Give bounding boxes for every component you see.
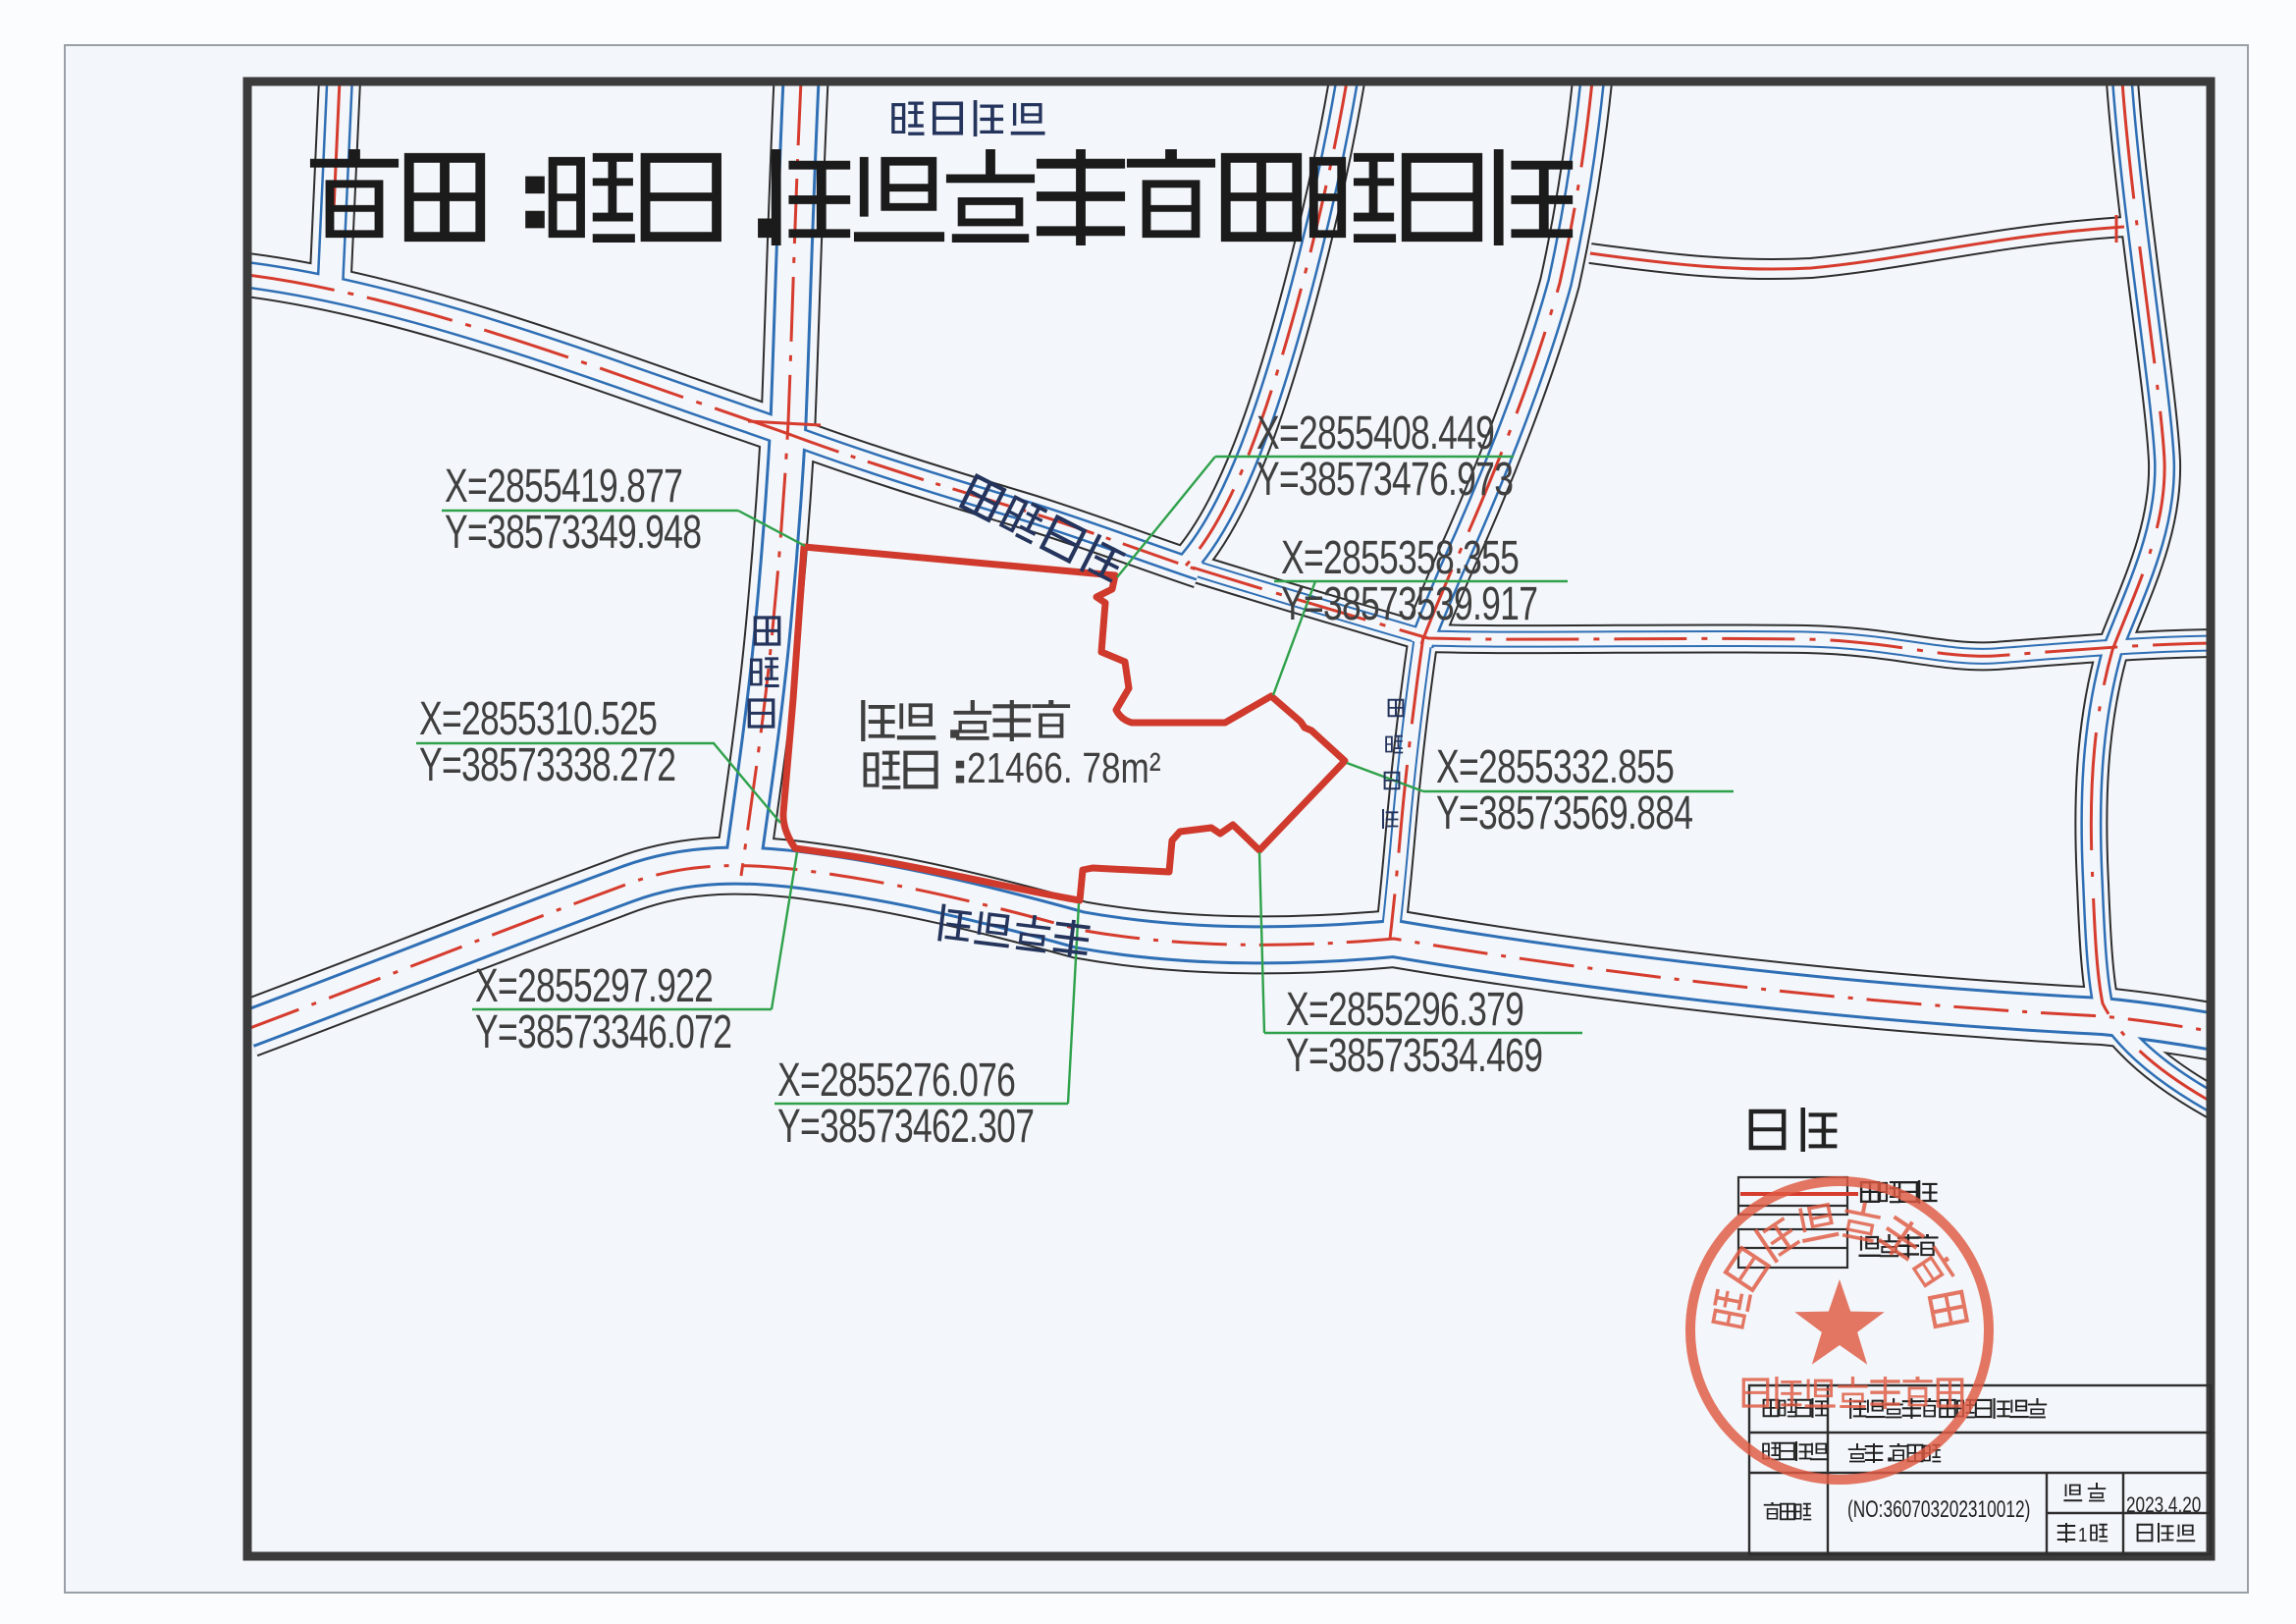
- svg-text:Y=38573338.272: Y=38573338.272: [419, 738, 675, 790]
- svg-text:Y=38573539.917: Y=38573539.917: [1281, 577, 1537, 629]
- svg-text:X=2855297.922: X=2855297.922: [475, 959, 713, 1011]
- svg-text:21466. 78m²: 21466. 78m²: [967, 744, 1161, 792]
- svg-text:X=2855310.525: X=2855310.525: [419, 692, 657, 744]
- svg-text:Y=38573462.307: Y=38573462.307: [777, 1100, 1034, 1152]
- svg-text:Y=38573476.973: Y=38573476.973: [1256, 453, 1513, 505]
- svg-text:Y=38573534.469: Y=38573534.469: [1286, 1029, 1542, 1081]
- svg-text:Y=38573346.072: Y=38573346.072: [475, 1005, 731, 1057]
- svg-text:X=2855408.449: X=2855408.449: [1256, 406, 1494, 459]
- svg-text:Y=38573569.884: Y=38573569.884: [1436, 786, 1693, 839]
- svg-text:1: 1: [2078, 1524, 2087, 1546]
- svg-text:Y=38573349.948: Y=38573349.948: [445, 506, 701, 558]
- svg-text:X=2855296.379: X=2855296.379: [1286, 983, 1523, 1035]
- svg-text:2023.4.20: 2023.4.20: [2126, 1493, 2201, 1518]
- svg-text:X=2855419.877: X=2855419.877: [445, 460, 682, 512]
- svg-text:X=2855332.855: X=2855332.855: [1436, 740, 1674, 792]
- svg-text:X=2855358.355: X=2855358.355: [1281, 531, 1519, 583]
- svg-text:X=2855276.076: X=2855276.076: [777, 1054, 1015, 1106]
- svg-text:(NO:360703202310012): (NO:360703202310012): [1847, 1496, 2030, 1522]
